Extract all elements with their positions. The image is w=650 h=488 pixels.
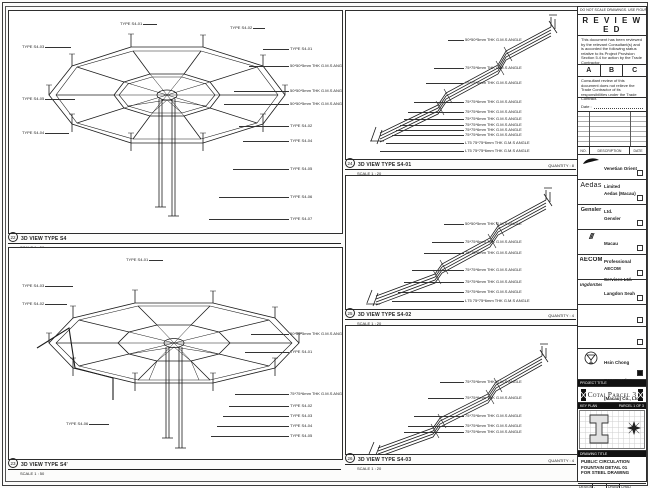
company-row-empty	[578, 305, 646, 327]
company-row-gensler: Gensler Gensler	[578, 205, 646, 230]
company-name: Gensler	[604, 216, 621, 221]
leader-annotation: TYPE S4-07	[209, 217, 313, 221]
annotation-layer: 50*50*5mm THK G.M.S ANGLE75*75*6mm THK G…	[346, 11, 577, 159]
leader-annotation: 75*75*6mm THK G.M.S ANGLE	[408, 424, 523, 428]
view-title: 3D VIEW TYPE S4-03	[358, 457, 411, 463]
leader-annotation: 75*75*6mm THK G.M.S ANGLE	[235, 392, 343, 396]
key-plan-parcel-label: PARCEL 1 OF 3	[619, 404, 644, 408]
revision-table-divider	[589, 112, 590, 146]
top-note: DO NOT SCALE DRAWINGS. USE FIGURED DIMEN…	[578, 7, 646, 15]
leader-annotation: 50*50*5mm THK G.M.S ANGLE	[251, 332, 343, 336]
leader-annotation: 50*50*5mm THK G.M.S ANGLE	[224, 102, 343, 106]
company-row-empty	[578, 327, 646, 349]
panel-caption: 26 3D VIEW TYPE S4-03 QUANTITY : 4 SCALE…	[345, 454, 576, 471]
company-checkbox	[637, 170, 643, 176]
view-title: 3D VIEW TYPE S4	[21, 236, 67, 242]
panel-3d-view-type-s4: TYPE S4-01TYPE S4-02TYPE S4-03TYPE S4-05…	[8, 10, 343, 234]
rev-col-description: DESCRIPTION	[590, 147, 630, 154]
leader-annotation: 75*75*6mm THK G.M.S ANGLE	[432, 240, 523, 244]
revision-table	[578, 112, 646, 147]
leader-annotation: 50*50*5mm THK G.M.S ANGLE	[448, 38, 523, 42]
leader-annotation: 50*50*5mm THK G.M.S ANGLE	[234, 89, 343, 93]
detail-bubble-icon: 26	[345, 453, 355, 463]
drawn-value: CHAD	[620, 484, 646, 488]
leader-annotation: TYPE S4-02	[229, 404, 313, 408]
rev-col-date: DATE	[630, 147, 646, 154]
pillar-ornament-icon	[637, 389, 644, 401]
designed-label: DESIGNED	[578, 484, 593, 488]
annotation-layer: 75*75*6mm THK G.M.S ANGLE75*75*6mm THK G…	[346, 326, 577, 454]
company-name: AECOM	[604, 266, 621, 271]
leader-annotation: 75*75*6mm THK G.M.S ANGLE	[392, 133, 523, 137]
leader-annotation: 50*50*5mm THK G.M.S ANGLE	[249, 64, 343, 68]
company-row-mps: /// Macau Professional Services Ltd.	[578, 230, 646, 255]
company-checkbox	[637, 220, 643, 226]
leader-annotation: TYPE S4-06	[219, 195, 313, 199]
gensler-logo: Gensler	[580, 207, 602, 213]
leader-annotation: TYPE S4-04	[217, 424, 313, 428]
reviewed-stamp-title: R E V I E W E D	[578, 15, 646, 36]
drawing-sheet: TYPE S4-01TYPE S4-02TYPE S4-03TYPE S4-05…	[0, 0, 650, 488]
revision-table-divider	[630, 112, 631, 146]
leader-annotation: 75*75*6mm THK G.M.S ANGLE	[414, 100, 523, 104]
company-checkbox	[637, 339, 643, 345]
drawing-title-section: DRAWING TITLE PUBLIC CIRCULATION FOUNTAI…	[578, 451, 646, 484]
leader-annotation: 75*75*6mm THK G.M.S ANGLE	[440, 380, 523, 384]
leader-annotation: 75*75*6mm THK G.M.S ANGLE	[412, 268, 523, 272]
key-plan: KEY PLAN PARCEL 1 OF 3	[578, 403, 646, 451]
leader-annotation: L75 75*75*6mm THK G.M.S ANGLE	[380, 149, 531, 153]
status-option-b: B	[601, 65, 624, 76]
leader-annotation: 75*75*6mm THK G.M.S ANGLE	[404, 280, 523, 284]
company-checkbox	[637, 195, 643, 201]
leader-annotation: L75 75*75*6mm THK G.M.S ANGLE	[386, 141, 531, 145]
leader-annotation: L75 75*75*6mm THK G.M.S ANGLE	[392, 299, 531, 303]
view-title: 3D VIEW TYPE S4-02	[358, 312, 411, 318]
leader-annotation: 75*75*6mm THK G.M.S ANGLE	[424, 251, 523, 255]
scale-label: SCALE 1 : 50	[20, 471, 44, 476]
leader-annotation: 75*75*6mm THK G.M.S ANGLE	[426, 81, 523, 85]
company-row-venetian: Venetian Orient Limited	[578, 155, 646, 180]
reviewed-status-options: A B C	[578, 65, 646, 77]
annotation-layer: TYPE S4-0150*50*5mm THK G.M.S ANGLE50*50…	[9, 11, 342, 233]
panel-caption: 23 3D VIEW TYPE S4' SCALE 1 : 50	[8, 459, 341, 476]
quantity-label: QUANTITY : 4	[548, 458, 574, 463]
venetian-swoosh-logo-icon	[580, 157, 602, 165]
company-row-aedas: Aedas Aedas (Macau) Ltd.	[578, 180, 646, 205]
leader-annotation: 75*75*6mm THK G.M.S ANGLE	[414, 414, 523, 418]
hsin-chong-emblem-icon	[580, 351, 602, 365]
reviewed-stamp-body: This document has been reviewed by the r…	[578, 36, 646, 65]
reviewed-stamp-note: Consultant review of this document does …	[578, 77, 646, 98]
drawn-label: DRAWN	[607, 484, 620, 488]
detail-bubble-icon: 25	[345, 308, 355, 318]
leader-annotation: 75*75*6mm THK G.M.S ANGLE	[434, 66, 523, 70]
detail-bubble-icon: 23	[8, 458, 18, 468]
quantity-label: QUANTITY : 8	[548, 163, 574, 168]
company-checkbox	[637, 370, 643, 376]
panel-3d-view-type-s4-03: 75*75*6mm THK G.M.S ANGLE75*75*6mm THK G…	[345, 325, 578, 455]
annotation-layer: 50*50*5mm THK G.M.S ANGLE75*75*6mm THK G…	[346, 176, 577, 309]
company-row-aecom: AECOM AECOM	[578, 255, 646, 280]
leader-annotation: TYPE S4-01	[263, 47, 313, 51]
company-name: Langdon Seah	[604, 291, 635, 296]
company-checkbox	[637, 295, 643, 301]
date-label: Date :	[581, 104, 592, 109]
leader-annotation: TYPE S4-01	[245, 350, 313, 354]
company-row-contractor: Hsin Chong Construction (Macau) Co., Ltd…	[578, 349, 646, 380]
detail-bubble-icon: 22	[8, 232, 18, 242]
date-row: Date :	[578, 98, 646, 112]
parcel-i-shape	[584, 412, 614, 446]
leader-annotation: 75*75*6mm THK G.M.S ANGLE	[398, 290, 523, 294]
key-plan-map	[579, 410, 645, 449]
project-banner: Cotai Parcel 3	[578, 387, 646, 403]
project-title-bar: PROJECT TITLE	[578, 380, 646, 387]
designed-value: -	[593, 484, 607, 488]
panel-3d-view-type-s4-02: 50*50*5mm THK G.M.S ANGLE75*75*6mm THK G…	[345, 175, 578, 310]
panel-3d-view-type-s4-01: 50*50*5mm THK G.M.S ANGLE75*75*6mm THK G…	[345, 10, 578, 160]
quantity-label: QUANTITY : 4	[548, 313, 574, 318]
leader-annotation: TYPE S4-04	[243, 139, 313, 143]
leader-annotation: 75*75*6mm THK G.M.S ANGLE	[428, 396, 523, 400]
view-title: 3D VIEW TYPE S4-01	[358, 162, 411, 168]
panel-3d-view-type-s4-prime: TYPE S4-01TYPE S4-03TYPE S4-02TYPE S4-06…	[8, 247, 343, 460]
aedas-logo: Aedas	[580, 182, 602, 189]
project-name: Cotai Parcel 3	[588, 390, 637, 399]
leader-annotation: 50*50*5mm THK G.M.S ANGLE	[444, 222, 523, 226]
company-checkbox	[637, 317, 643, 323]
leader-annotation: TYPE S4-05	[233, 167, 313, 171]
status-option-a: A	[578, 65, 601, 76]
rev-col-no: NO.	[578, 147, 590, 154]
company-checkbox	[637, 270, 643, 276]
key-plan-label: KEY PLAN	[580, 404, 597, 408]
annotation-layer: 50*50*5mm THK G.M.S ANGLETYPE S4-0175*75…	[9, 248, 342, 459]
view-title: 3D VIEW TYPE S4'	[21, 462, 68, 468]
leader-annotation: 75*75*6mm THK G.M.S ANGLE	[404, 117, 523, 121]
company-checkbox	[637, 245, 643, 251]
aecom-logo: AECOM	[580, 257, 602, 263]
compass-icon	[627, 421, 641, 435]
scale-label: SCALE 1 : 20	[357, 466, 381, 471]
drawing-title-text: PUBLIC CIRCULATION FOUNTAIN DETAIL 01 FO…	[578, 457, 646, 483]
company-row-langdon-seah: LangdonSeah Langdon Seah	[578, 280, 646, 305]
mps-slashes-logo: ///	[580, 232, 602, 241]
leader-annotation: 75*75*6mm THK G.M.S ANGLE	[408, 110, 523, 114]
leader-annotation: TYPE S4-02	[239, 124, 313, 128]
pillar-ornament-icon	[580, 389, 587, 401]
detail-bubble-icon: 24	[345, 158, 355, 168]
title-block: DO NOT SCALE DRAWINGS. USE FIGURED DIMEN…	[577, 6, 647, 482]
fields-table: DESIGNED - DRAWN CHAD CHECKED - DATE 14/…	[578, 484, 646, 488]
panel-caption: 25 3D VIEW TYPE S4-02 QUANTITY : 4 SCALE…	[345, 309, 576, 326]
leader-annotation: 75*75*6mm THK G.M.S ANGLE	[404, 430, 523, 434]
status-option-c: C	[623, 65, 646, 76]
revision-table-header: NO. DESCRIPTION DATE	[578, 147, 646, 155]
date-fill-line	[594, 104, 643, 109]
leader-annotation: TYPE S4-03	[223, 414, 313, 418]
langdon-seah-logo: LangdonSeah	[580, 282, 602, 287]
panel-caption: 24 3D VIEW TYPE S4-01 QUANTITY : 8 SCALE…	[345, 159, 576, 176]
leader-annotation: TYPE S4-05	[211, 434, 313, 438]
